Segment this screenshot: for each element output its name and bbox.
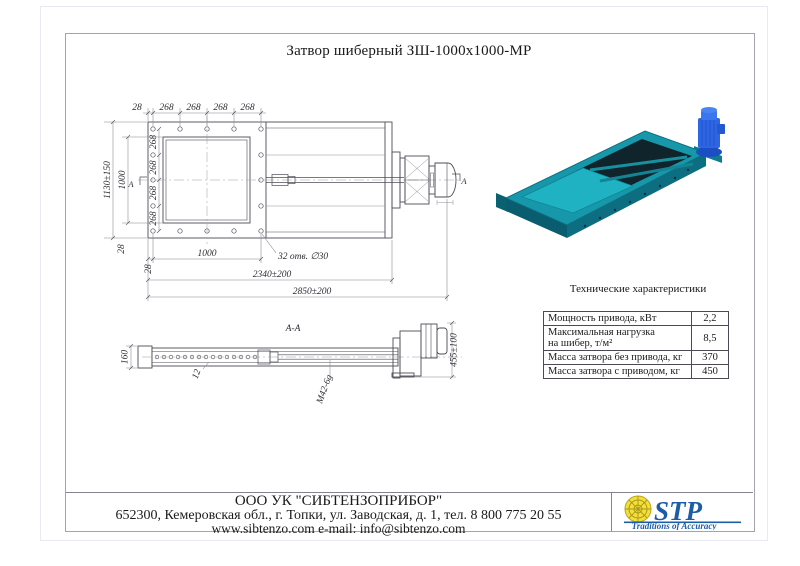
dim-col-3: 268	[149, 186, 159, 201]
section-marker-left: А	[127, 179, 134, 189]
spec-value-power: 2,2	[691, 312, 728, 326]
stp-tagline: Traditions of Accuracy	[632, 521, 718, 530]
spec-name-load: Максимальная нагрузка на шибер, т/м²	[544, 326, 692, 351]
dim-pitch-3: 268	[213, 103, 228, 113]
spec-value-mass-no-drive: 370	[691, 351, 728, 365]
holes-note: 32 отв. ∅30	[277, 252, 328, 262]
footer-contact-block: ООО УК "СИБТЕНЗОПРИБОР" 652300, Кемеровс…	[66, 493, 611, 531]
product-render-3d	[496, 107, 725, 238]
table-row: Масса затвора с приводом, кг 450	[544, 365, 729, 379]
dim-section-height: 160	[121, 350, 131, 365]
dim-thread: М42-6g	[315, 373, 335, 406]
section-label: А-А	[285, 324, 301, 334]
dim-col-2: 268	[149, 160, 159, 175]
dim-pitch-2: 268	[186, 103, 201, 113]
datasheet-page: Затвор шиберный ЗШ-1000х1000-МР	[0, 0, 800, 566]
spec-table: Мощность привода, кВт 2,2 Максимальная н…	[543, 311, 729, 379]
dim-pitch-4: 268	[240, 103, 255, 113]
stp-logo: STP Traditions of Accuracy	[611, 493, 753, 531]
company-web: www.sibtenzo.com e-mail: info@sibtenzo.c…	[66, 522, 611, 535]
table-row: Мощность привода, кВт 2,2	[544, 312, 729, 326]
dim-height-total: 1130±150	[103, 161, 113, 199]
dim-plate-thickness: 12	[191, 368, 204, 381]
dim-top-margin: 28	[132, 103, 142, 113]
spec-value-load: 8,5	[691, 326, 728, 351]
dim-pitch-1: 268	[159, 103, 174, 113]
motor-render	[696, 107, 725, 157]
actuator-section-view	[392, 324, 447, 378]
table-row: Максимальная нагрузка на шибер, т/м² 8,5	[544, 326, 729, 351]
footer: ООО УК "СИБТЕНЗОПРИБОР" 652300, Кемеровс…	[66, 492, 753, 531]
dim-bottom-margin: 28	[144, 264, 154, 274]
spec-name-mass-no-drive: Масса затвора без привода, кг	[544, 351, 692, 365]
view-marker-right: А	[460, 176, 467, 186]
table-row: Масса затвора без привода, кг 370	[544, 351, 729, 365]
dim-col-margin: 28	[117, 244, 127, 254]
spec-name-power: Мощность привода, кВт	[544, 312, 692, 326]
spec-section: Технические характеристики Мощность прив…	[543, 283, 733, 379]
spec-title: Технические характеристики	[543, 283, 733, 295]
dim-length-total: 2850±200	[293, 287, 332, 297]
company-name: ООО УК "СИБТЕНЗОПРИБОР"	[66, 494, 611, 509]
dim-col-1: 268	[149, 135, 159, 150]
top-view	[138, 116, 462, 244]
stp-emblem-icon	[625, 496, 651, 522]
dim-opening-height: 1000	[118, 170, 128, 189]
stp-logo-graphic: STP Traditions of Accuracy	[612, 493, 753, 530]
spec-name-mass-with-drive: Масса затвора с приводом, кг	[544, 365, 692, 379]
dim-length-working: 2340±200	[253, 270, 292, 280]
dim-stroke: 455±100	[450, 333, 460, 367]
dim-col-4: 268	[149, 211, 159, 226]
spec-value-mass-with-drive: 450	[691, 365, 728, 379]
dim-opening-width: 1000	[198, 249, 217, 259]
